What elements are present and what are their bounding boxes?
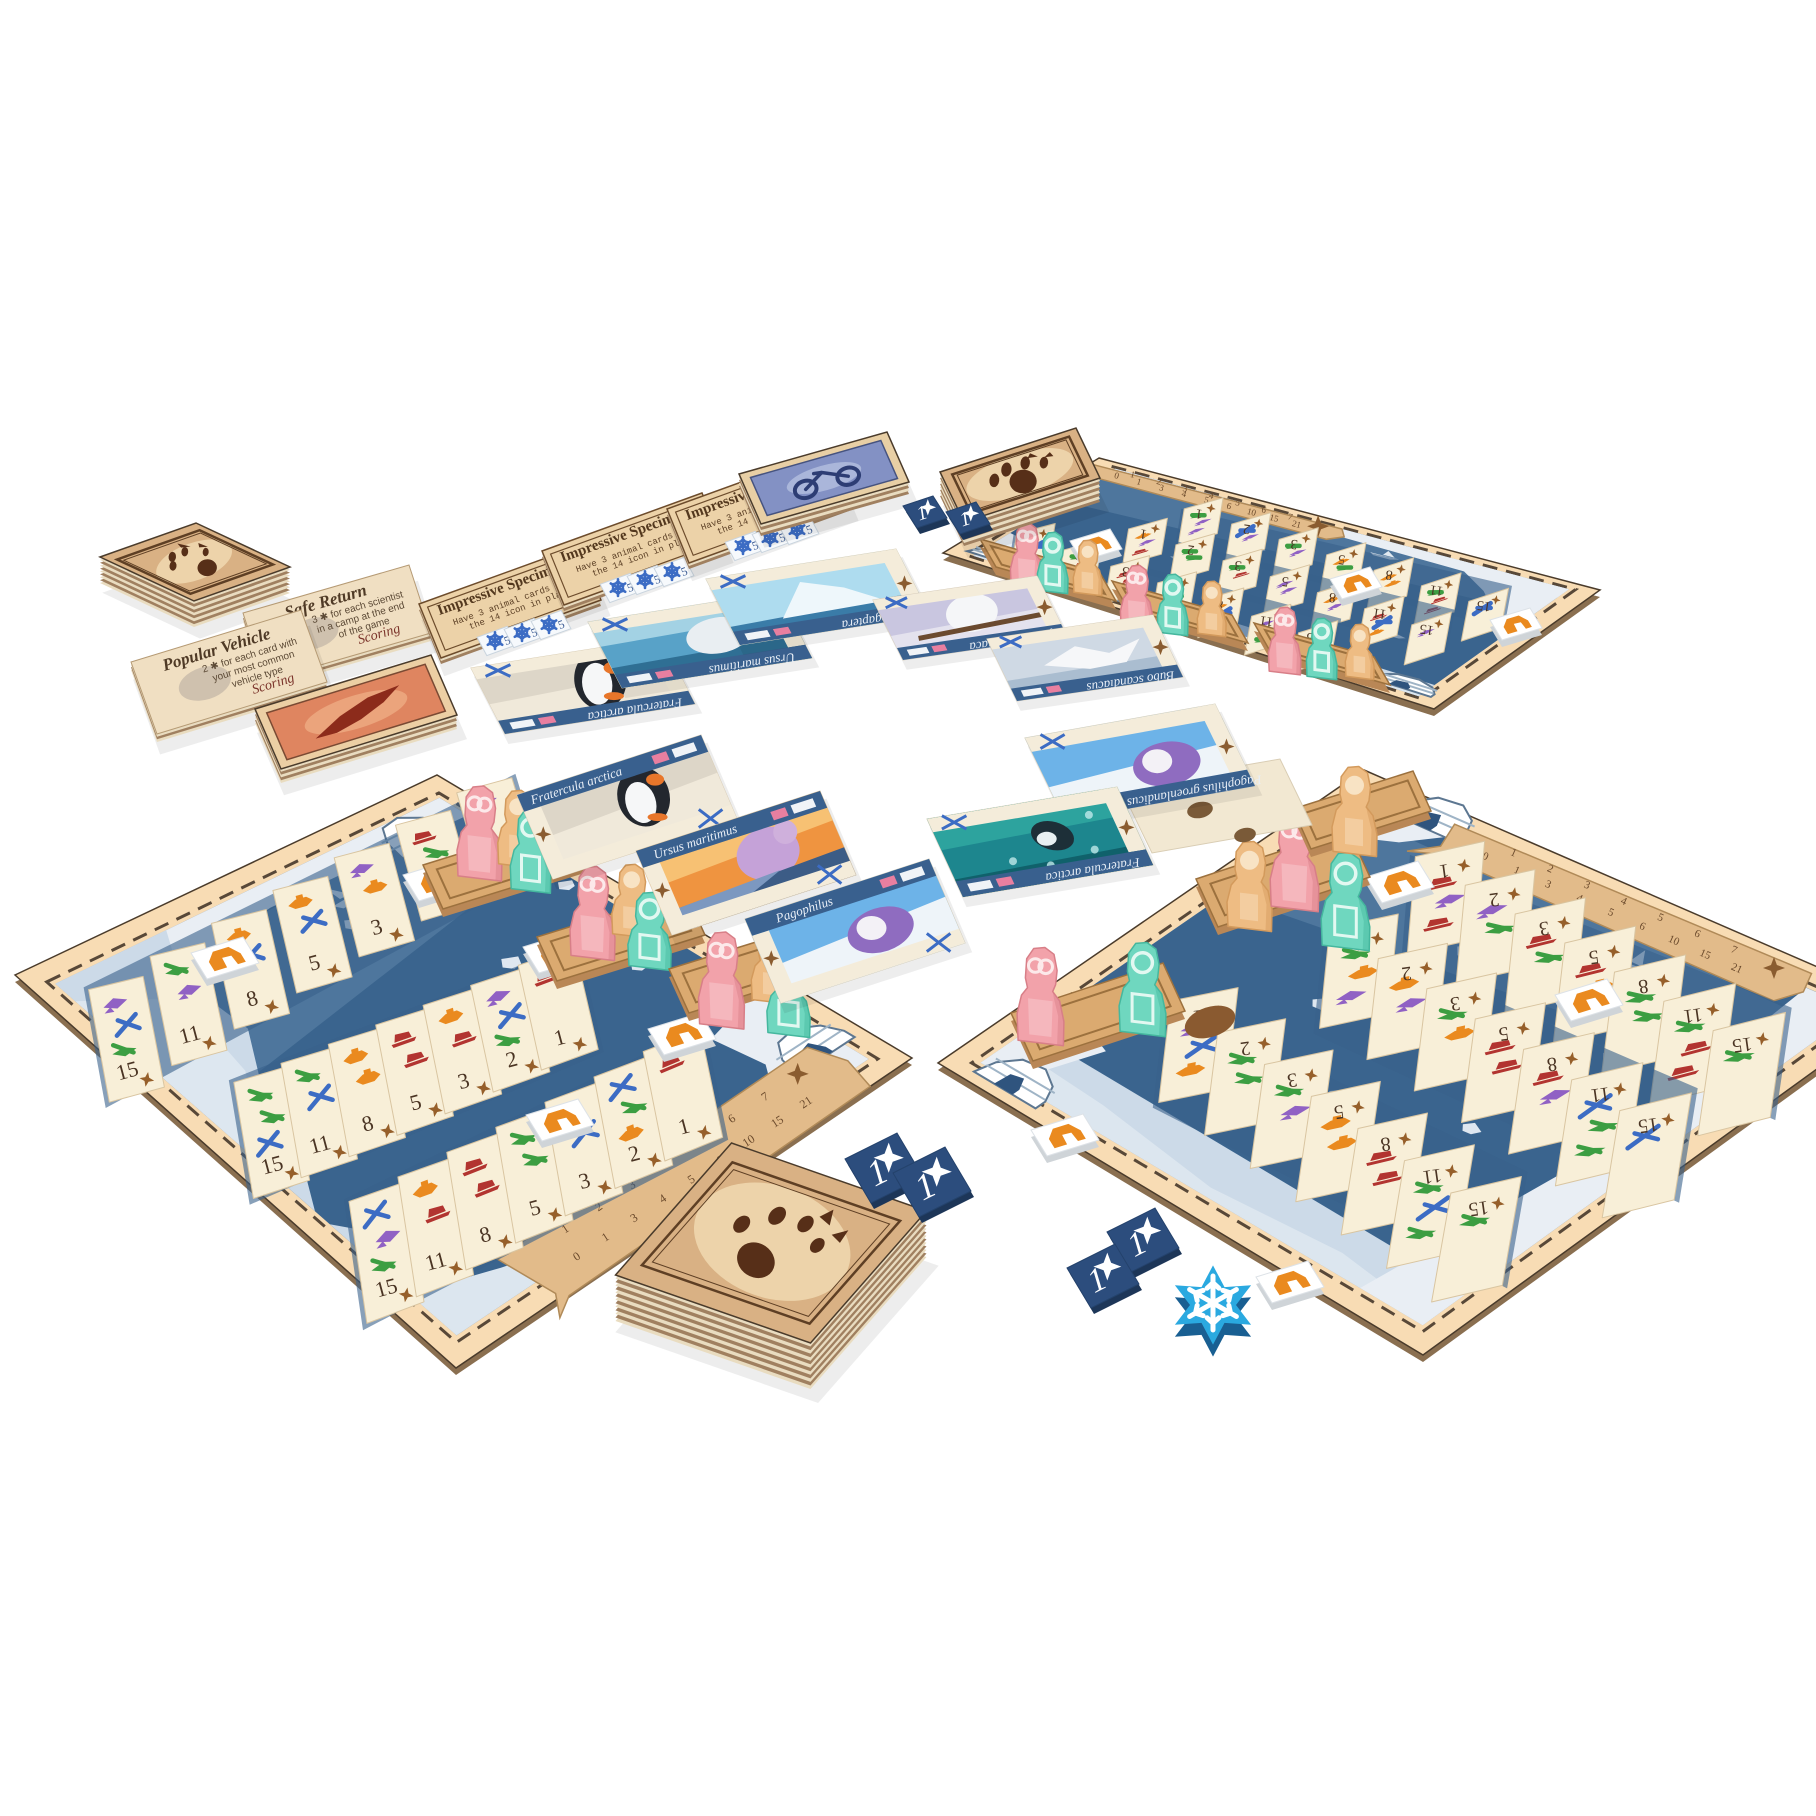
- svg-text:11: 11: [1682, 1003, 1704, 1027]
- svg-text:11: 11: [1429, 581, 1444, 598]
- svg-text:15: 15: [1476, 597, 1492, 614]
- svg-text:15: 15: [1419, 620, 1435, 637]
- svg-text:15: 15: [1637, 1113, 1660, 1138]
- svg-text:11: 11: [1589, 1082, 1611, 1106]
- svg-text:15: 15: [1467, 1196, 1490, 1221]
- svg-text:15: 15: [1731, 1032, 1754, 1057]
- svg-text:11: 11: [1421, 1164, 1443, 1188]
- svg-text:11: 11: [1372, 604, 1387, 621]
